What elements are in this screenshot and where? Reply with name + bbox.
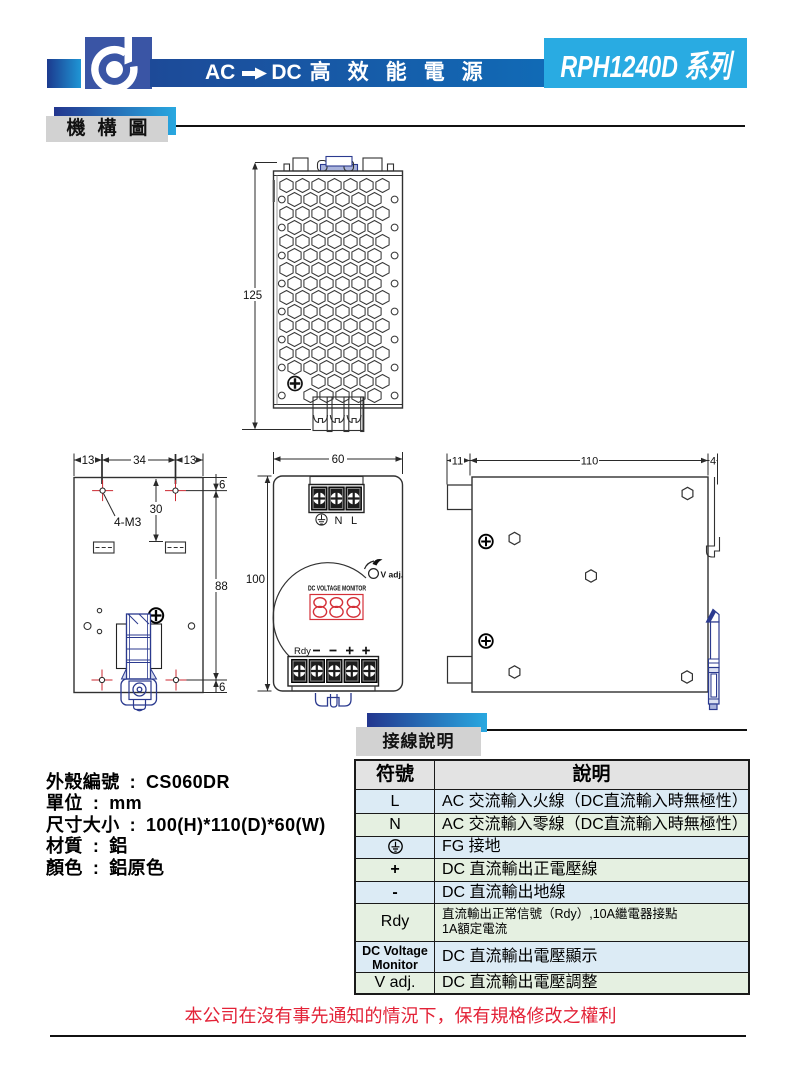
svg-text:11: 11 xyxy=(452,456,463,468)
svg-text:4-M3: 4-M3 xyxy=(114,515,142,529)
svg-text:13: 13 xyxy=(82,455,95,467)
svg-text:30: 30 xyxy=(150,504,163,516)
svg-text:Rdy: Rdy xyxy=(294,646,311,657)
svg-text:N: N xyxy=(335,515,343,527)
svg-text:DC VOLTAGE MONITOR: DC VOLTAGE MONITOR xyxy=(308,586,366,593)
svg-text:L: L xyxy=(351,515,357,527)
svg-text:13: 13 xyxy=(184,455,197,467)
svg-text:6: 6 xyxy=(219,480,225,492)
svg-text:125: 125 xyxy=(243,290,262,302)
svg-text:34: 34 xyxy=(133,455,146,467)
svg-text:60: 60 xyxy=(332,454,345,466)
svg-text:100: 100 xyxy=(246,574,265,586)
svg-text:6: 6 xyxy=(219,682,225,694)
svg-text:4: 4 xyxy=(710,456,716,468)
svg-text:88: 88 xyxy=(215,581,228,593)
svg-text:V adj.: V adj. xyxy=(381,570,404,580)
svg-text:110: 110 xyxy=(581,456,599,468)
